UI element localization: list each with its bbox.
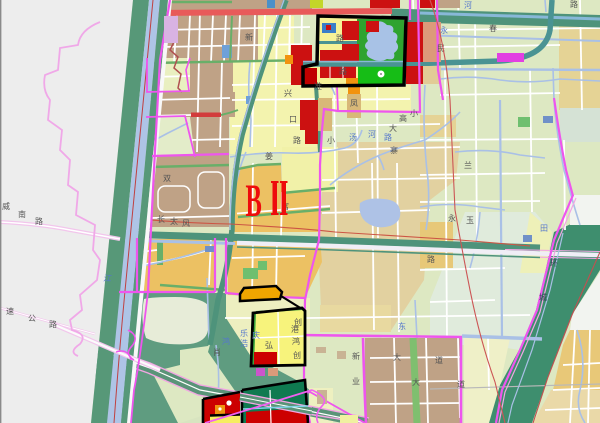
svg-text:鸿: 鸿 xyxy=(222,336,230,346)
svg-text:肖: 肖 xyxy=(213,347,221,357)
svg-text:B: B xyxy=(246,176,262,227)
svg-text:春: 春 xyxy=(489,23,497,33)
svg-text:兰: 兰 xyxy=(464,160,472,170)
svg-text:长: 长 xyxy=(157,214,165,224)
svg-text:庆: 庆 xyxy=(252,330,260,340)
svg-text:鸿: 鸿 xyxy=(292,336,300,346)
svg-text:道: 道 xyxy=(435,355,443,365)
svg-text:路: 路 xyxy=(570,0,578,9)
svg-text:路: 路 xyxy=(339,66,347,76)
svg-text:路: 路 xyxy=(49,319,57,329)
svg-text:高: 高 xyxy=(399,113,407,123)
svg-text:玉: 玉 xyxy=(466,216,474,225)
svg-text:兴: 兴 xyxy=(284,89,292,98)
svg-text:河: 河 xyxy=(464,0,472,10)
svg-text:东: 东 xyxy=(398,321,406,331)
svg-text:路: 路 xyxy=(427,254,435,264)
svg-text:双: 双 xyxy=(163,174,171,183)
svg-text:南: 南 xyxy=(18,209,26,219)
svg-text:浩: 浩 xyxy=(240,338,248,348)
svg-text:业: 业 xyxy=(352,376,360,386)
svg-text:风: 风 xyxy=(182,219,190,228)
svg-text:弘: 弘 xyxy=(265,341,273,350)
svg-text:田: 田 xyxy=(540,224,548,233)
svg-text:口: 口 xyxy=(289,115,297,124)
svg-text:永: 永 xyxy=(440,25,448,35)
svg-text:大: 大 xyxy=(389,123,397,133)
svg-text:大: 大 xyxy=(412,377,420,387)
svg-text:小: 小 xyxy=(410,109,418,118)
svg-text:寨: 寨 xyxy=(390,145,398,155)
svg-text:创: 创 xyxy=(294,317,302,327)
svg-text:准: 准 xyxy=(314,81,322,91)
svg-text:路: 路 xyxy=(336,33,344,43)
svg-text:路: 路 xyxy=(293,135,301,145)
svg-text:永: 永 xyxy=(448,213,456,223)
svg-text:路: 路 xyxy=(35,216,43,226)
svg-text:乐: 乐 xyxy=(240,328,248,338)
svg-text:威: 威 xyxy=(2,201,10,211)
svg-text:新: 新 xyxy=(352,351,360,361)
svg-text:创: 创 xyxy=(293,350,301,360)
svg-text:新: 新 xyxy=(245,32,253,42)
svg-text:凤: 凤 xyxy=(350,99,358,108)
svg-text:城: 城 xyxy=(539,293,547,302)
svg-text:江: 江 xyxy=(103,274,112,283)
svg-text:路: 路 xyxy=(384,132,392,142)
svg-text:姜: 姜 xyxy=(265,151,273,161)
svg-text:道: 道 xyxy=(457,379,465,389)
svg-text:河: 河 xyxy=(368,129,376,139)
svg-text:小: 小 xyxy=(327,136,335,145)
svg-text:太: 太 xyxy=(170,216,178,226)
svg-text:公: 公 xyxy=(28,314,36,323)
svg-text:汤: 汤 xyxy=(349,133,357,142)
svg-text:环: 环 xyxy=(550,259,558,268)
svg-text:大: 大 xyxy=(393,352,401,362)
svg-text:速: 速 xyxy=(6,307,14,316)
